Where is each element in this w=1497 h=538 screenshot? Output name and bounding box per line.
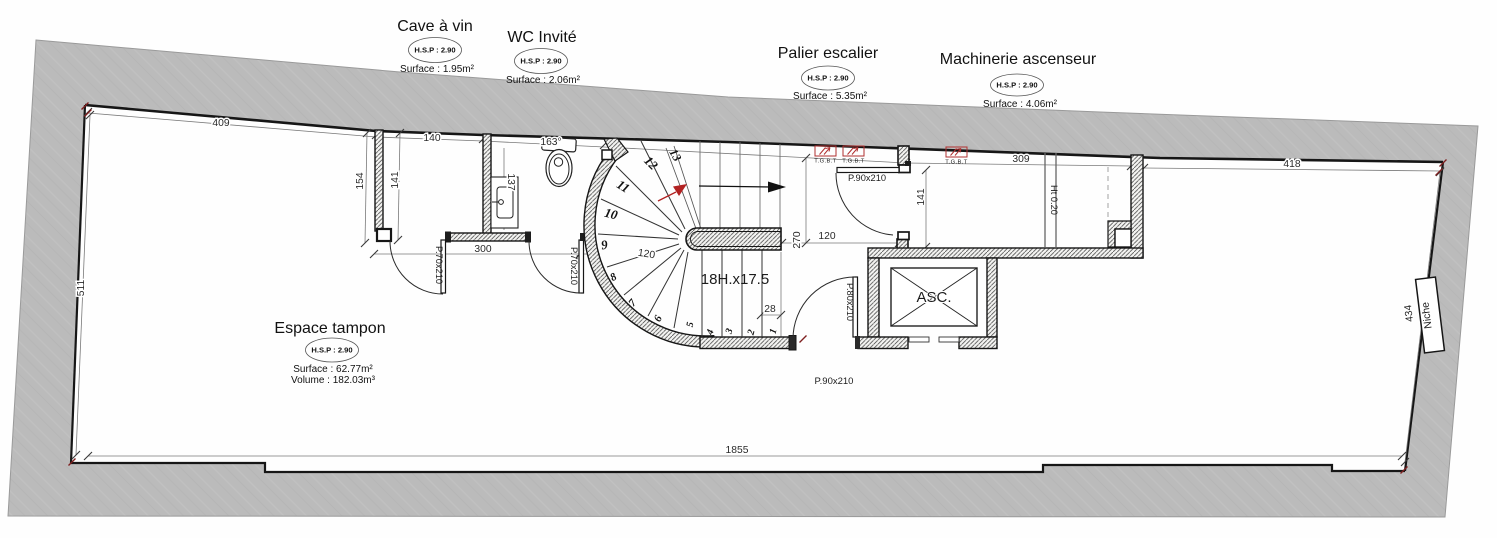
svg-text:Surface : 2.06m²: Surface : 2.06m² [506, 75, 581, 86]
svg-text:163°: 163° [540, 137, 561, 148]
svg-text:Surface : 5.35m²: Surface : 5.35m² [793, 91, 868, 102]
svg-text:154: 154 [355, 172, 366, 189]
svg-text:Surface : 4.06m²: Surface : 4.06m² [983, 99, 1058, 110]
svg-text:511: 511 [76, 280, 87, 297]
svg-text:H.S.P : 2.90: H.S.P : 2.90 [414, 46, 455, 55]
svg-text:P.70x210: P.70x210 [434, 246, 444, 284]
svg-text:300: 300 [474, 244, 491, 255]
svg-text:ASC.: ASC. [916, 289, 951, 306]
svg-text:WC Invité: WC Invité [507, 29, 576, 46]
svg-text:418: 418 [1283, 159, 1300, 170]
svg-text:H.S.P : 2.90: H.S.P : 2.90 [311, 346, 352, 355]
svg-text:Machinerie ascenseur: Machinerie ascenseur [940, 51, 1097, 68]
svg-text:Surface : 1.95m²: Surface : 1.95m² [400, 64, 475, 75]
svg-text:120: 120 [818, 231, 835, 242]
svg-text:P.80x210: P.80x210 [845, 283, 855, 321]
svg-text:309: 309 [1012, 154, 1029, 165]
svg-text:Surface : 62.77m²: Surface : 62.77m² [293, 364, 373, 375]
svg-text:140: 140 [423, 133, 440, 144]
svg-text:137: 137 [505, 173, 516, 190]
svg-text:H.S.P : 2.90: H.S.P : 2.90 [996, 81, 1037, 90]
svg-text:H.S.P : 2.90: H.S.P : 2.90 [520, 57, 561, 66]
svg-text:T.G.B.T: T.G.B.T [945, 160, 968, 166]
svg-text:T.G.B.T: T.G.B.T [814, 159, 837, 165]
svg-text:P.90x210: P.90x210 [815, 376, 854, 387]
svg-text:18H.x17.5: 18H.x17.5 [701, 271, 769, 288]
svg-text:141: 141 [916, 188, 927, 205]
svg-text:Palier escalier: Palier escalier [778, 45, 879, 62]
svg-text:141: 141 [390, 171, 401, 188]
svg-text:Ht 0.20: Ht 0.20 [1049, 185, 1059, 215]
svg-text:409: 409 [212, 118, 229, 129]
svg-text:P.70x210: P.70x210 [569, 247, 579, 285]
svg-text:270: 270 [792, 231, 803, 248]
svg-text:434: 434 [1403, 304, 1416, 323]
svg-text:1855: 1855 [726, 445, 749, 456]
svg-text:P.90x210: P.90x210 [848, 173, 886, 183]
svg-text:H.S.P : 2.90: H.S.P : 2.90 [807, 74, 848, 83]
svg-text:T.G.B.T: T.G.B.T [842, 159, 865, 165]
svg-text:Volume : 182.03m³: Volume : 182.03m³ [291, 375, 376, 386]
svg-text:28: 28 [764, 304, 776, 315]
svg-text:Espace tampon: Espace tampon [274, 320, 385, 337]
svg-text:Cave à vin: Cave à vin [397, 18, 473, 35]
